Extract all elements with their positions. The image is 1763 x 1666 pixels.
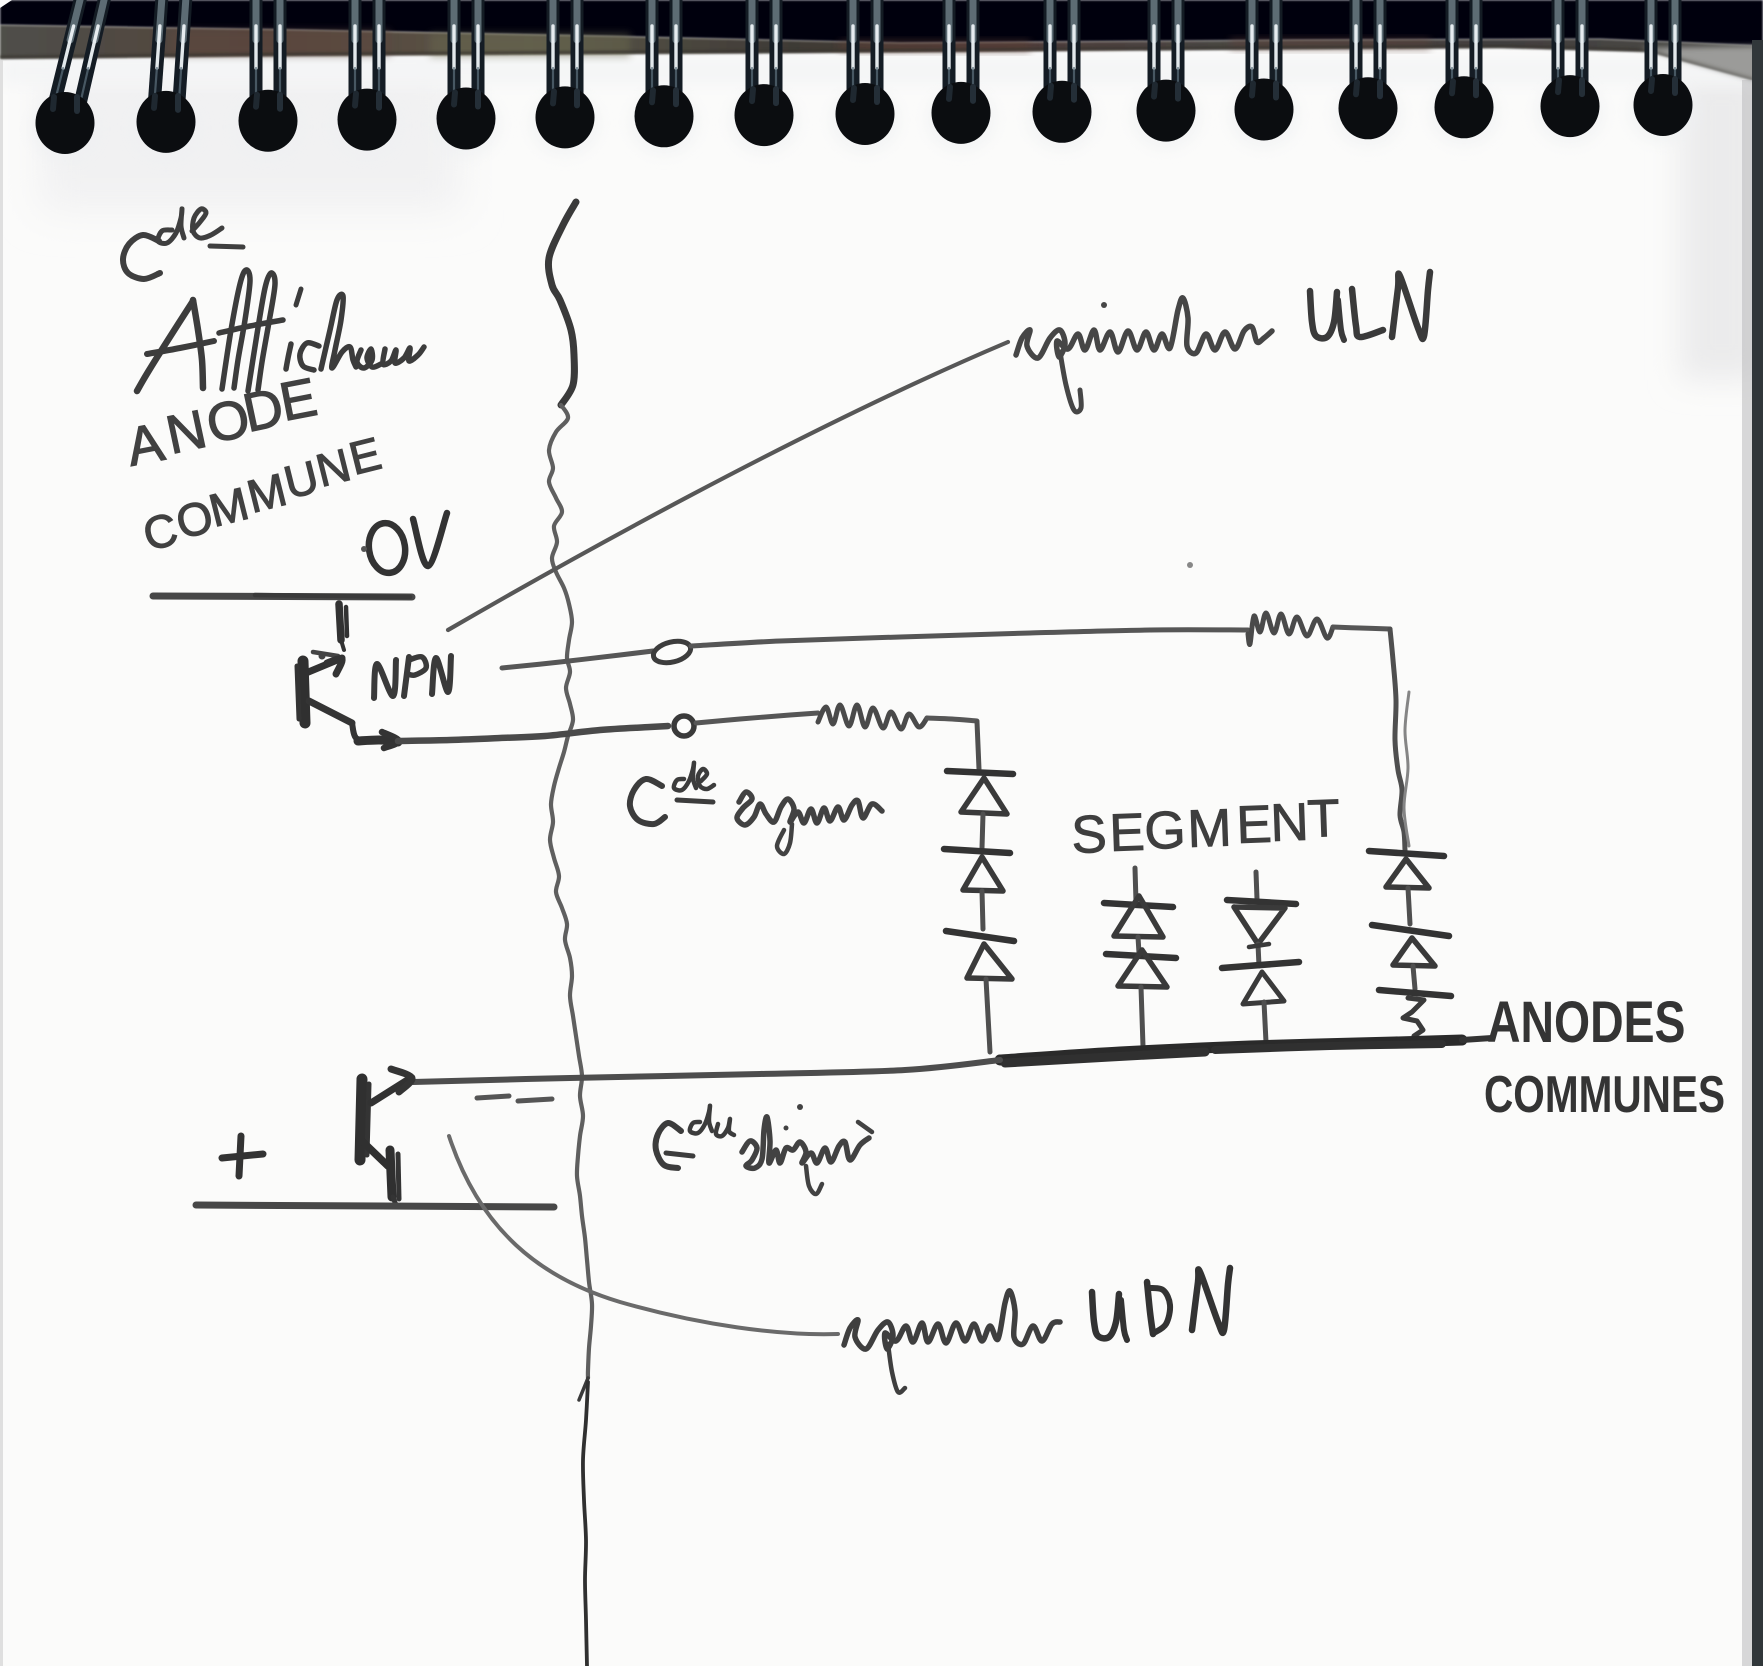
svg-text:E: E xyxy=(1108,803,1145,863)
svg-text:E: E xyxy=(1235,795,1272,855)
svg-text:S: S xyxy=(1070,805,1107,865)
svg-text:M: M xyxy=(1186,798,1232,859)
svg-text:N: N xyxy=(1269,793,1309,853)
svg-text:ANODES: ANODES xyxy=(1487,990,1686,1055)
svg-text:COMMUNES: COMMUNES xyxy=(1484,1065,1725,1123)
svg-text:T: T xyxy=(1306,789,1340,849)
svg-text:G: G xyxy=(1143,801,1186,861)
